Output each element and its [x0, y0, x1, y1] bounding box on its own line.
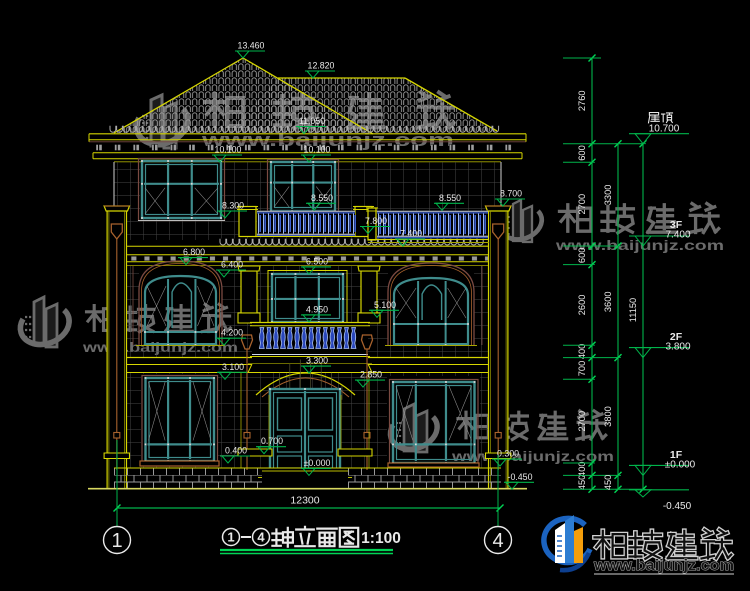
svg-text:6.800: 6.800	[183, 247, 205, 257]
svg-text:8.300: 8.300	[222, 201, 244, 211]
svg-text:2700: 2700	[577, 411, 587, 432]
svg-text:10.700: 10.700	[649, 124, 680, 135]
svg-text:0.700: 0.700	[261, 436, 283, 446]
svg-text:3300: 3300	[603, 185, 613, 206]
svg-text:4: 4	[257, 530, 265, 545]
svg-text:1: 1	[111, 530, 122, 552]
svg-text:-0.450: -0.450	[663, 501, 692, 512]
svg-text:8.550: 8.550	[311, 193, 333, 203]
svg-text:-0.450: -0.450	[508, 472, 533, 482]
svg-text:400: 400	[577, 461, 587, 477]
svg-text:10.100: 10.100	[304, 145, 331, 155]
svg-text:0.400: 0.400	[225, 446, 247, 456]
svg-text:8.550: 8.550	[439, 193, 461, 203]
svg-text:5.100: 5.100	[374, 300, 396, 310]
svg-text:2.850: 2.850	[360, 370, 382, 380]
svg-text:3.100: 3.100	[222, 362, 244, 372]
svg-text:3600: 3600	[603, 291, 613, 312]
svg-text:10.100: 10.100	[215, 145, 242, 155]
svg-text:4.950: 4.950	[306, 304, 328, 314]
svg-text:7.400: 7.400	[665, 230, 690, 241]
svg-text:www.baijunjz.com: www.baijunjz.com	[593, 558, 734, 574]
svg-text:450: 450	[603, 475, 613, 491]
svg-text:±0.000: ±0.000	[304, 458, 331, 468]
svg-text:4: 4	[492, 530, 503, 552]
svg-text:3800: 3800	[603, 406, 613, 427]
svg-text:±0.000: ±0.000	[665, 460, 696, 471]
svg-text:2700: 2700	[577, 194, 587, 215]
svg-text:1: 1	[227, 530, 234, 545]
svg-text:0.300: 0.300	[497, 449, 519, 459]
svg-text:400: 400	[577, 344, 587, 360]
svg-text:6.400: 6.400	[221, 260, 243, 270]
svg-text:7.800: 7.800	[365, 216, 387, 226]
svg-text:1:100: 1:100	[361, 530, 401, 547]
svg-text:700: 700	[577, 361, 587, 377]
svg-text:2760: 2760	[577, 90, 587, 111]
svg-text:11.050: 11.050	[299, 116, 325, 126]
svg-text:600: 600	[577, 145, 587, 161]
svg-text:6.500: 6.500	[306, 256, 328, 266]
svg-text:12.820: 12.820	[308, 61, 335, 71]
svg-text:3.300: 3.300	[306, 356, 328, 366]
svg-text:13.460: 13.460	[238, 41, 265, 51]
svg-text:7.400: 7.400	[400, 229, 422, 239]
svg-text:11150: 11150	[628, 298, 638, 322]
svg-text:450: 450	[577, 475, 587, 491]
svg-text:2600: 2600	[577, 295, 587, 316]
svg-text:8.700: 8.700	[500, 189, 522, 199]
svg-text:3.800: 3.800	[665, 342, 690, 353]
svg-text:600: 600	[577, 248, 587, 264]
svg-text:4.200: 4.200	[221, 328, 243, 338]
svg-text:12300: 12300	[290, 495, 319, 507]
